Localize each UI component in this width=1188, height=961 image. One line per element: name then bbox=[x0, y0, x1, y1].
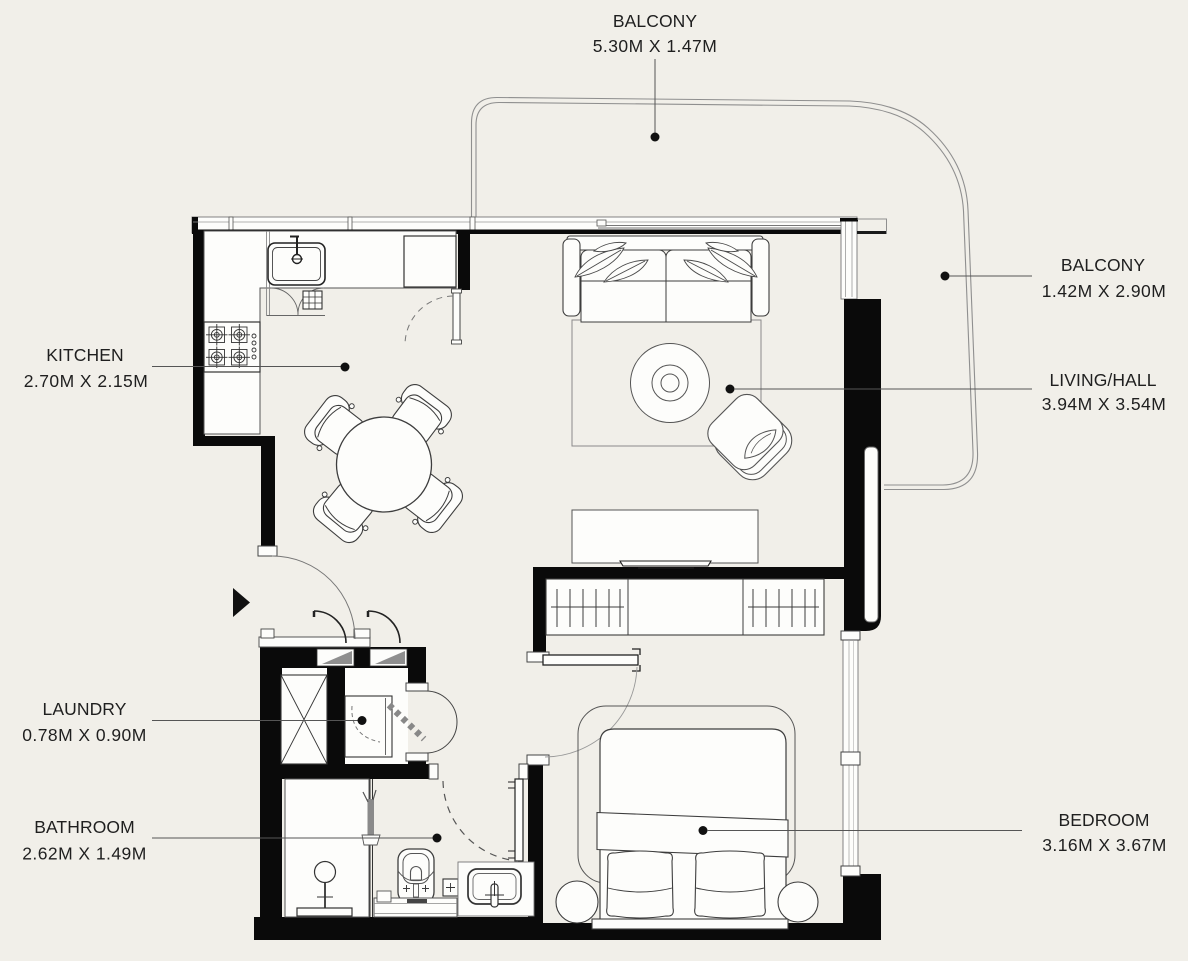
svg-text:3.16M X 3.67M: 3.16M X 3.67M bbox=[1042, 835, 1167, 855]
svg-text:LIVING/HALL: LIVING/HALL bbox=[1049, 370, 1156, 390]
svg-text:BATHROOM: BATHROOM bbox=[34, 817, 135, 837]
svg-text:BEDROOM: BEDROOM bbox=[1058, 810, 1149, 830]
svg-text:LAUNDRY: LAUNDRY bbox=[42, 699, 126, 719]
svg-text:0.78M X 0.90M: 0.78M X 0.90M bbox=[22, 725, 147, 745]
svg-text:BALCONY: BALCONY bbox=[1061, 255, 1146, 275]
svg-text:BALCONY: BALCONY bbox=[613, 11, 698, 31]
svg-text:KITCHEN: KITCHEN bbox=[46, 345, 124, 365]
svg-text:5.30M X 1.47M: 5.30M X 1.47M bbox=[593, 36, 718, 56]
svg-text:3.94M X 3.54M: 3.94M X 3.54M bbox=[1042, 394, 1167, 414]
svg-text:2.62M X 1.49M: 2.62M X 1.49M bbox=[22, 844, 147, 864]
svg-text:1.42M X 2.90M: 1.42M X 2.90M bbox=[1042, 281, 1167, 301]
svg-text:2.70M X 2.15M: 2.70M X 2.15M bbox=[24, 371, 149, 391]
